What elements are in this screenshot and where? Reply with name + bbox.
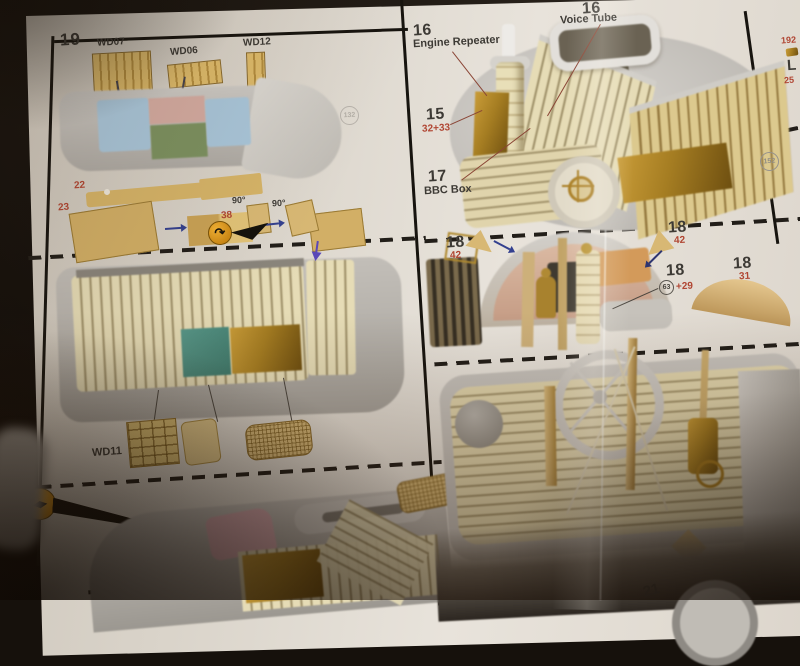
photo-of-instruction-sheet: 19 WD07 WD06 WD12 132 22 23 38 90° 90° (0, 0, 800, 600)
dark-slat-piece (426, 257, 483, 348)
arrow-icon (165, 227, 181, 230)
edge-part-thumbnail (786, 47, 799, 57)
out-of-focus-object (0, 426, 49, 552)
hatch-wheel-spoke (562, 185, 594, 187)
crew-figure-head (541, 268, 551, 278)
part-label-wd07: WD07 (97, 36, 125, 48)
angle-label-90: 90° (232, 195, 246, 206)
part-label-wd12: WD12 (243, 36, 271, 48)
compass-platform (599, 298, 672, 332)
edge-callout-25: 25 (784, 75, 795, 86)
next-panel-render (672, 580, 758, 666)
angle-label-90: 90° (272, 198, 286, 209)
etched-grid-part-wd11 (126, 418, 180, 468)
deck-area-green (150, 123, 208, 160)
part-callout-22: 22 (74, 180, 86, 192)
hatch-wheel (568, 176, 594, 202)
brass-wheel-small (696, 460, 724, 488)
callout-18-1-part: 42 (450, 250, 462, 262)
side-plank-piece (306, 260, 356, 376)
mast-column (558, 238, 567, 350)
part-callout-23: 23 (58, 202, 70, 214)
callout-18-3-circle: 63 (659, 280, 674, 295)
callout-bbc-box-label: BBC Box (424, 183, 472, 197)
part-callout-38: 38 (221, 210, 233, 222)
brass-plate-part (230, 324, 302, 374)
wood-deck-part-wd06 (167, 59, 223, 89)
mast (544, 386, 557, 486)
diagram-number-badge: 132 (340, 106, 360, 126)
half-dome-part (691, 272, 796, 327)
binnacle-brass-ball (581, 243, 592, 254)
step-number: 19 (59, 29, 81, 50)
crew-figure (536, 276, 556, 318)
callout-18-3-plus: +29 (676, 281, 694, 293)
part-label-wd11: WD11 (92, 445, 123, 459)
teal-hatch-part (181, 327, 231, 377)
edge-partial-letter: L (786, 57, 796, 75)
deck-area-blue-right (205, 97, 251, 147)
deck-area-pink (148, 96, 205, 125)
repeater-pipe (502, 24, 515, 60)
hull-wing-flap (241, 77, 350, 186)
deck-pot (455, 400, 503, 448)
callout-18-3-number: 18 (666, 262, 686, 281)
mesh-grille-part-17 (244, 419, 313, 462)
deck-area-blue-left (97, 98, 152, 153)
arrow-icon (494, 240, 511, 250)
dashed-separator-left-2 (0, 460, 442, 492)
edge-callout-192: 192 (781, 34, 797, 45)
callout-15-parts: 32+33 (422, 122, 451, 134)
bend-step-part-bent (285, 199, 319, 236)
ship-wheel-hub (593, 390, 607, 404)
tan-panel-part-38 (180, 418, 222, 467)
brass-plate-bottom (242, 549, 324, 604)
etched-part-23a (69, 201, 160, 264)
mast-column (521, 252, 535, 347)
purple-arrow-icon (310, 251, 321, 261)
binnacle-column (576, 250, 600, 344)
callout-18-2-part: 42 (674, 235, 686, 247)
part-label-wd06: WD06 (170, 45, 198, 58)
